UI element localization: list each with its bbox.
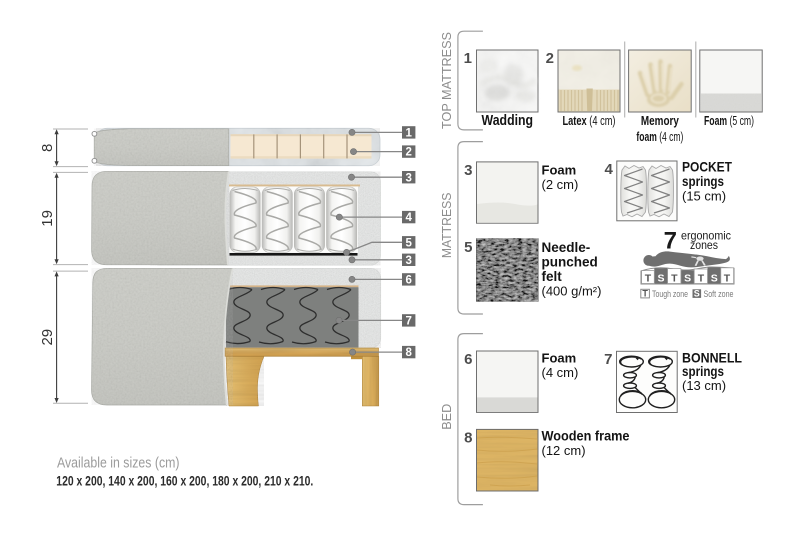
svg-text:zones: zones <box>690 238 718 252</box>
svg-text:7: 7 <box>405 316 411 328</box>
svg-text:29: 29 <box>39 329 56 346</box>
svg-text:S: S <box>694 289 700 299</box>
svg-text:3: 3 <box>405 172 411 184</box>
svg-text:Wadding: Wadding <box>482 113 534 129</box>
svg-text:Needle-: Needle- <box>542 240 591 255</box>
svg-text:TOP MATTRESS: TOP MATTRESS <box>439 32 454 129</box>
svg-text:Foam: Foam <box>542 351 577 366</box>
svg-text:8: 8 <box>405 347 412 359</box>
svg-text:2: 2 <box>405 147 411 159</box>
svg-text:POCKET: POCKET <box>682 160 733 175</box>
svg-text:1: 1 <box>464 50 472 67</box>
svg-text:19: 19 <box>39 210 56 227</box>
svg-text:S: S <box>711 273 718 285</box>
svg-text:Soft zone: Soft zone <box>704 289 734 300</box>
svg-text:Foam (5 cm): Foam (5 cm) <box>704 114 754 128</box>
svg-text:8: 8 <box>464 430 472 447</box>
svg-text:120 x 200, 140 x 200, 160 x 20: 120 x 200, 140 x 200, 160 x 200, 180 x 2… <box>56 473 313 489</box>
svg-text:Foam: Foam <box>542 163 577 178</box>
svg-text:Available in sizes (cm): Available in sizes (cm) <box>57 456 180 472</box>
svg-text:T: T <box>724 273 731 285</box>
svg-text:T: T <box>642 289 648 299</box>
svg-text:6: 6 <box>405 275 411 287</box>
svg-text:(13 cm): (13 cm) <box>682 378 726 393</box>
svg-text:(4 cm): (4 cm) <box>542 365 579 380</box>
svg-text:6: 6 <box>464 351 472 368</box>
svg-text:4: 4 <box>604 161 613 178</box>
svg-text:5: 5 <box>405 237 412 249</box>
svg-text:7: 7 <box>664 227 677 254</box>
svg-text:(15 cm): (15 cm) <box>682 189 726 204</box>
svg-text:3: 3 <box>464 162 472 179</box>
svg-text:Latex (4 cm): Latex (4 cm) <box>563 114 616 128</box>
svg-text:S: S <box>684 273 691 285</box>
svg-text:springs: springs <box>682 364 724 379</box>
svg-text:(400 g/m²): (400 g/m²) <box>542 284 602 299</box>
svg-text:Memory: Memory <box>641 114 679 128</box>
svg-text:MATTRESS: MATTRESS <box>439 192 454 258</box>
svg-text:felt: felt <box>542 269 563 284</box>
svg-text:(2 cm): (2 cm) <box>542 177 579 192</box>
svg-text:2: 2 <box>546 50 554 67</box>
svg-text:T: T <box>698 273 705 285</box>
svg-text:5: 5 <box>464 239 472 256</box>
svg-text:foam (4 cm): foam (4 cm) <box>636 130 683 144</box>
svg-text:T: T <box>645 273 652 285</box>
svg-text:BED: BED <box>439 404 454 430</box>
svg-text:springs: springs <box>682 174 724 189</box>
svg-text:8: 8 <box>39 144 56 152</box>
svg-text:S: S <box>657 273 664 285</box>
svg-text:7: 7 <box>604 351 612 368</box>
svg-text:(12 cm): (12 cm) <box>542 443 586 458</box>
svg-text:Tough zone: Tough zone <box>652 289 688 300</box>
svg-text:3: 3 <box>405 255 411 267</box>
svg-text:T: T <box>671 273 678 285</box>
svg-text:4: 4 <box>405 212 412 224</box>
svg-text:punched: punched <box>542 255 598 270</box>
svg-text:Wooden frame: Wooden frame <box>542 429 630 444</box>
svg-text:1: 1 <box>405 128 412 140</box>
